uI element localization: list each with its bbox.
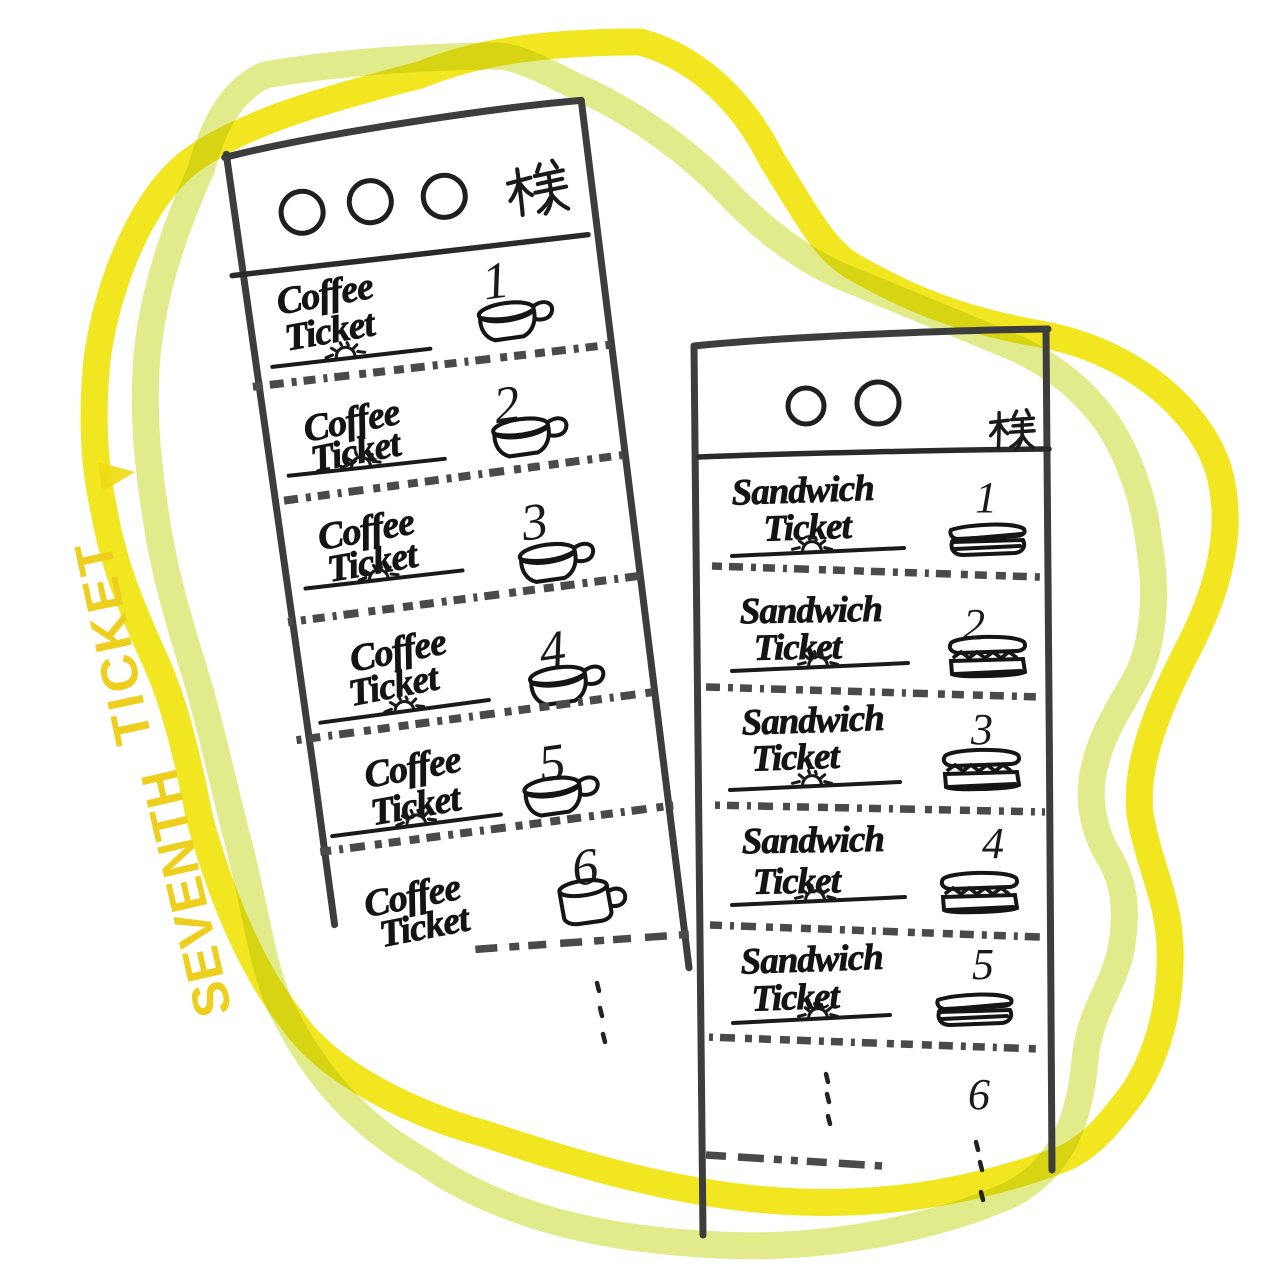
svg-text:2: 2 (963, 600, 985, 649)
svg-text:3: 3 (970, 705, 993, 754)
svg-text:5: 5 (972, 940, 994, 989)
svg-text:6: 6 (968, 1070, 990, 1119)
svg-text:Ticket: Ticket (751, 976, 842, 1020)
svg-text:Sandwich: Sandwich (741, 819, 884, 862)
svg-text:4: 4 (982, 819, 1004, 868)
svg-text:Sandwich: Sandwich (739, 589, 882, 632)
svg-text:Ticket: Ticket (751, 736, 842, 780)
svg-text:1: 1 (975, 473, 997, 522)
